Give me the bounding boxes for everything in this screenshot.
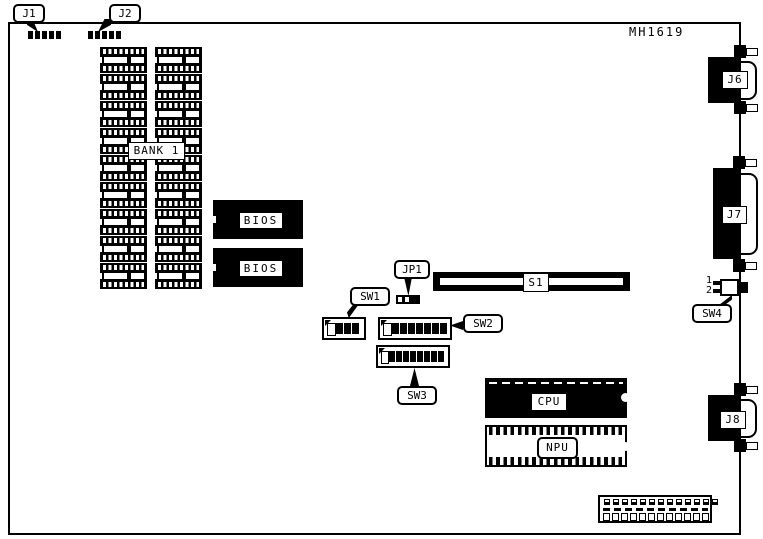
memory-chip bbox=[100, 74, 147, 100]
chip-pin-row bbox=[158, 228, 199, 233]
s1-slot: S1 bbox=[433, 272, 630, 291]
chip-slot bbox=[104, 246, 127, 252]
j8-screw-tab-bottom bbox=[746, 442, 758, 450]
j8-screw-tab-top bbox=[746, 386, 758, 394]
switch-cell-on bbox=[352, 323, 359, 334]
chip-pin-row bbox=[103, 228, 144, 233]
chip-pin-row bbox=[103, 201, 144, 206]
memory-chip bbox=[155, 101, 202, 127]
chip-slot bbox=[186, 84, 199, 90]
callout-sw2: SW2 bbox=[463, 314, 503, 333]
bios1-notch bbox=[213, 216, 216, 223]
switch-cell-on bbox=[336, 323, 343, 334]
callout-j2: J2 bbox=[109, 4, 141, 23]
chip-notch bbox=[100, 192, 102, 198]
chip-slot bbox=[104, 165, 127, 171]
chip-pin-row bbox=[103, 238, 144, 243]
chip-slot bbox=[186, 165, 199, 171]
chip-slot bbox=[131, 111, 144, 117]
chip-notch bbox=[155, 165, 157, 171]
switch-cell-on bbox=[344, 323, 351, 334]
s1-slot-stripe bbox=[440, 278, 523, 285]
edge-pin-hole bbox=[693, 513, 700, 521]
chip-pin-row bbox=[103, 184, 144, 189]
chip-pin-row bbox=[158, 211, 199, 216]
edge-pin-hole bbox=[612, 513, 619, 521]
chip-pin-row bbox=[103, 265, 144, 270]
sw3-dip-switch bbox=[376, 345, 450, 368]
chip-slot bbox=[159, 192, 182, 198]
edge-pin-hole bbox=[684, 513, 691, 521]
chip-pin-row bbox=[103, 130, 144, 135]
chip-pin-row bbox=[103, 93, 144, 98]
chip-pin-row bbox=[158, 238, 199, 243]
edge-pin-hole bbox=[639, 513, 646, 521]
chip-pin-row bbox=[103, 255, 144, 260]
chip-pin-row bbox=[158, 265, 199, 270]
edge-contact bbox=[604, 499, 610, 505]
chip-notch bbox=[100, 273, 102, 279]
edge-pin-hole bbox=[630, 513, 637, 521]
chip-slot bbox=[186, 246, 199, 252]
chip-slot bbox=[104, 57, 127, 63]
callout-sw4: SW4 bbox=[692, 304, 732, 323]
chip-notch bbox=[155, 192, 157, 198]
memory-chip bbox=[155, 236, 202, 262]
bios-chip-1: BIOS bbox=[213, 200, 303, 239]
switch-cell-on bbox=[408, 323, 415, 334]
chip-notch bbox=[100, 57, 102, 63]
chip-pin-row bbox=[103, 103, 144, 108]
edge-connector-bottom-contacts bbox=[603, 513, 709, 521]
switch-cell-on bbox=[403, 351, 409, 362]
chip-slot bbox=[104, 273, 127, 279]
switch-cell-off bbox=[381, 351, 389, 364]
j2-connector bbox=[88, 31, 121, 39]
switch-cell-on bbox=[400, 323, 407, 334]
npu-label: NPU bbox=[537, 437, 578, 459]
chip-slot bbox=[131, 192, 144, 198]
memory-chip bbox=[155, 74, 202, 100]
j7-screw-bottom bbox=[733, 259, 745, 272]
chip-slot bbox=[159, 219, 182, 225]
chip-pin-row bbox=[103, 174, 144, 179]
cpu-label: CPU bbox=[531, 393, 567, 411]
edge-contact bbox=[622, 499, 628, 505]
chip-slot bbox=[159, 246, 182, 252]
chip-pin-row bbox=[158, 130, 199, 135]
j7-screw-tab-top bbox=[745, 159, 757, 167]
sw1-dip-switch bbox=[322, 317, 366, 340]
chip-pin-row bbox=[158, 120, 199, 125]
cpu-notch bbox=[621, 393, 630, 402]
chip-pin-row bbox=[158, 103, 199, 108]
j6-screw-bottom bbox=[734, 101, 746, 114]
chip-pin-row bbox=[158, 76, 199, 81]
bios2-notch bbox=[213, 264, 216, 271]
s1-label: S1 bbox=[523, 273, 549, 292]
switch-cell-on bbox=[424, 323, 431, 334]
chip-notch bbox=[155, 57, 157, 63]
chip-slot bbox=[159, 273, 182, 279]
memory-chip bbox=[100, 263, 147, 289]
edge-contact bbox=[676, 499, 682, 505]
chip-notch bbox=[155, 273, 157, 279]
chip-pin-row bbox=[158, 201, 199, 206]
npu-socket: NPU bbox=[485, 425, 627, 467]
chip-notch bbox=[100, 219, 102, 225]
edge-contact bbox=[703, 499, 709, 505]
chip-slot bbox=[186, 192, 199, 198]
chip-slot bbox=[186, 57, 199, 63]
edge-pin-hole bbox=[603, 513, 610, 521]
edge-pin-hole bbox=[648, 513, 655, 521]
memory-chip bbox=[155, 209, 202, 235]
part-number-text: MH1619 bbox=[629, 25, 684, 39]
chip-pin-row bbox=[158, 93, 199, 98]
jp1-jumper bbox=[396, 295, 420, 304]
chip-slot bbox=[104, 219, 127, 225]
bank1-label: BANK 1 bbox=[128, 142, 185, 160]
memory-chip bbox=[100, 101, 147, 127]
bios2-label: BIOS bbox=[239, 260, 283, 277]
chip-slot bbox=[131, 219, 144, 225]
edge-pin-hole bbox=[621, 513, 628, 521]
edge-pin-hole bbox=[702, 513, 709, 521]
chip-pin-row bbox=[158, 282, 199, 287]
memory-chip bbox=[155, 263, 202, 289]
j7-screw-tab-bottom bbox=[745, 262, 757, 270]
edge-contact bbox=[613, 499, 619, 505]
chip-pin-row bbox=[103, 211, 144, 216]
chip-slot bbox=[159, 165, 182, 171]
chip-pin-row bbox=[103, 66, 144, 71]
npu-pin-row bbox=[489, 427, 623, 435]
sw2-dip-switch bbox=[378, 317, 452, 340]
chip-slot bbox=[186, 111, 199, 117]
edge-connector-top-contacts bbox=[604, 499, 718, 505]
chip-notch bbox=[155, 219, 157, 225]
j8-label: J8 bbox=[720, 411, 746, 429]
switch-cell-on bbox=[432, 323, 439, 334]
switch-cell-on bbox=[392, 323, 399, 334]
memory-chip bbox=[155, 47, 202, 73]
chip-pin-row bbox=[158, 255, 199, 260]
npu-notch bbox=[621, 442, 630, 451]
switch-cell-on bbox=[410, 351, 416, 362]
switch-cell-off bbox=[383, 323, 392, 336]
j1-connector bbox=[28, 31, 61, 39]
edge-pin-hole bbox=[675, 513, 682, 521]
callout-j1: J1 bbox=[13, 4, 45, 23]
chip-pin-row bbox=[158, 184, 199, 189]
memory-chip bbox=[100, 209, 147, 235]
memory-chip bbox=[155, 182, 202, 208]
chip-slot bbox=[186, 273, 199, 279]
switch-cell-on bbox=[440, 323, 447, 334]
chip-pin-row bbox=[103, 282, 144, 287]
jp1-pin-open bbox=[398, 297, 402, 302]
j6-label: J6 bbox=[722, 71, 748, 89]
callout-sw3: SW3 bbox=[397, 386, 437, 405]
cpu-chip: CPU bbox=[485, 378, 627, 418]
edge-contact bbox=[640, 499, 646, 505]
chip-slot bbox=[131, 273, 144, 279]
switch-cell-on bbox=[416, 323, 423, 334]
chip-slot bbox=[159, 57, 182, 63]
edge-contact bbox=[694, 499, 700, 505]
j8-screw-bottom bbox=[734, 439, 746, 452]
switch-cell-on bbox=[438, 351, 444, 362]
j7-label: J7 bbox=[722, 206, 747, 224]
chip-notch bbox=[100, 138, 102, 144]
switch-cell-off bbox=[327, 323, 336, 336]
chip-slot bbox=[131, 84, 144, 90]
chip-pin-row bbox=[158, 174, 199, 179]
edge-contact bbox=[667, 499, 673, 505]
chip-slot bbox=[159, 111, 182, 117]
switch-cell-on bbox=[424, 351, 430, 362]
motherboard-diagram: MH1619 J1 J2 BANK 1 BIOS BIOS JP1 S1 SW1… bbox=[0, 0, 763, 539]
chip-notch bbox=[155, 111, 157, 117]
chip-pin-row bbox=[158, 66, 199, 71]
sw4-pin2-number: 2 bbox=[706, 286, 712, 296]
chip-notch bbox=[155, 84, 157, 90]
chip-notch bbox=[100, 84, 102, 90]
bottom-edge-connector bbox=[598, 495, 712, 523]
memory-chip bbox=[100, 182, 147, 208]
s1-slot-stripe bbox=[547, 278, 623, 285]
chip-notch bbox=[100, 165, 102, 171]
chip-slot bbox=[186, 219, 199, 225]
sw4-actuator bbox=[739, 282, 748, 293]
edge-contact bbox=[712, 499, 718, 505]
memory-bank bbox=[100, 47, 205, 292]
cpu-dashed-edge bbox=[489, 382, 623, 384]
memory-chip bbox=[100, 47, 147, 73]
chip-slot bbox=[186, 138, 199, 144]
jp1-pin-open bbox=[405, 297, 409, 302]
chip-slot bbox=[104, 111, 127, 117]
chip-pin-row bbox=[103, 49, 144, 54]
chip-slot bbox=[159, 84, 182, 90]
edge-contact bbox=[631, 499, 637, 505]
memory-chip bbox=[100, 236, 147, 262]
edge-pin-hole bbox=[666, 513, 673, 521]
chip-notch bbox=[100, 246, 102, 252]
chip-pin-row bbox=[103, 76, 144, 81]
bios-chip-2: BIOS bbox=[213, 248, 303, 287]
chip-slot bbox=[131, 165, 144, 171]
sw4-switch bbox=[720, 279, 739, 296]
chip-pin-row bbox=[158, 49, 199, 54]
chip-notch bbox=[155, 246, 157, 252]
chip-slot bbox=[131, 246, 144, 252]
edge-pin-hole bbox=[657, 513, 664, 521]
bios1-label: BIOS bbox=[239, 212, 283, 229]
callout-sw1: SW1 bbox=[350, 287, 390, 306]
chip-slot bbox=[104, 138, 127, 144]
switch-cell-on bbox=[396, 351, 402, 362]
chip-notch bbox=[100, 111, 102, 117]
chip-slot bbox=[104, 84, 127, 90]
switch-cell-on bbox=[431, 351, 437, 362]
j6-screw-tab-bottom bbox=[746, 104, 758, 112]
callout-jp1: JP1 bbox=[394, 260, 430, 279]
switch-cell-on bbox=[417, 351, 423, 362]
chip-slot bbox=[104, 192, 127, 198]
edge-contact bbox=[658, 499, 664, 505]
switch-cell-on bbox=[389, 351, 395, 362]
edge-contact bbox=[649, 499, 655, 505]
j6-screw-tab-top bbox=[746, 48, 758, 56]
chip-pin-row bbox=[103, 120, 144, 125]
chip-slot bbox=[131, 57, 144, 63]
edge-connector-divider bbox=[603, 508, 708, 511]
edge-contact bbox=[685, 499, 691, 505]
